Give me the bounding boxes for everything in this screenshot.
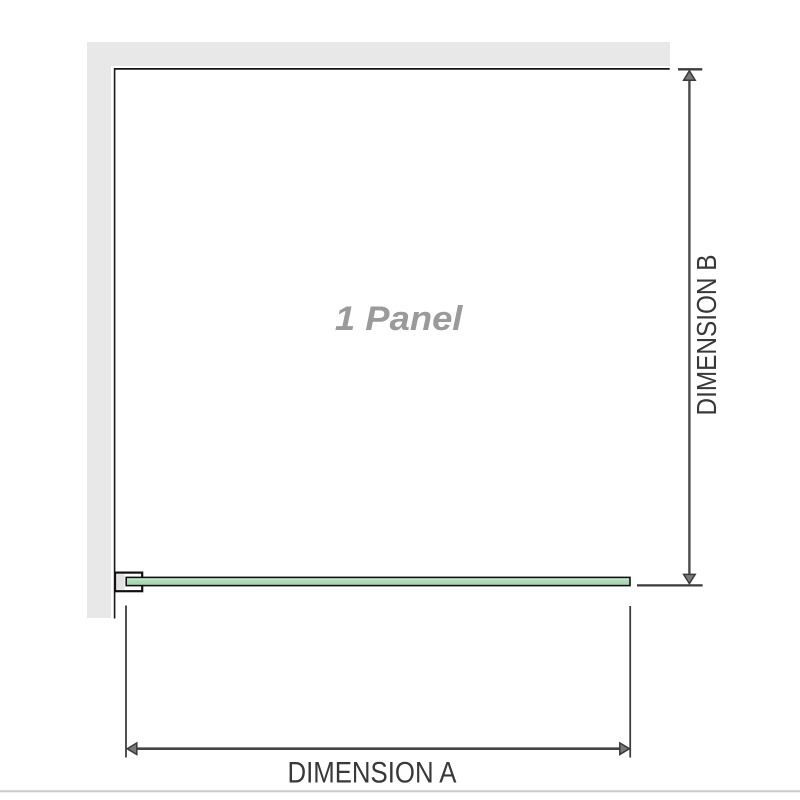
- svg-text:DIMENSION B: DIMENSION B: [691, 255, 722, 416]
- svg-text:DIMENSION A: DIMENSION A: [288, 757, 457, 790]
- svg-text:1 Panel: 1 Panel: [335, 300, 464, 338]
